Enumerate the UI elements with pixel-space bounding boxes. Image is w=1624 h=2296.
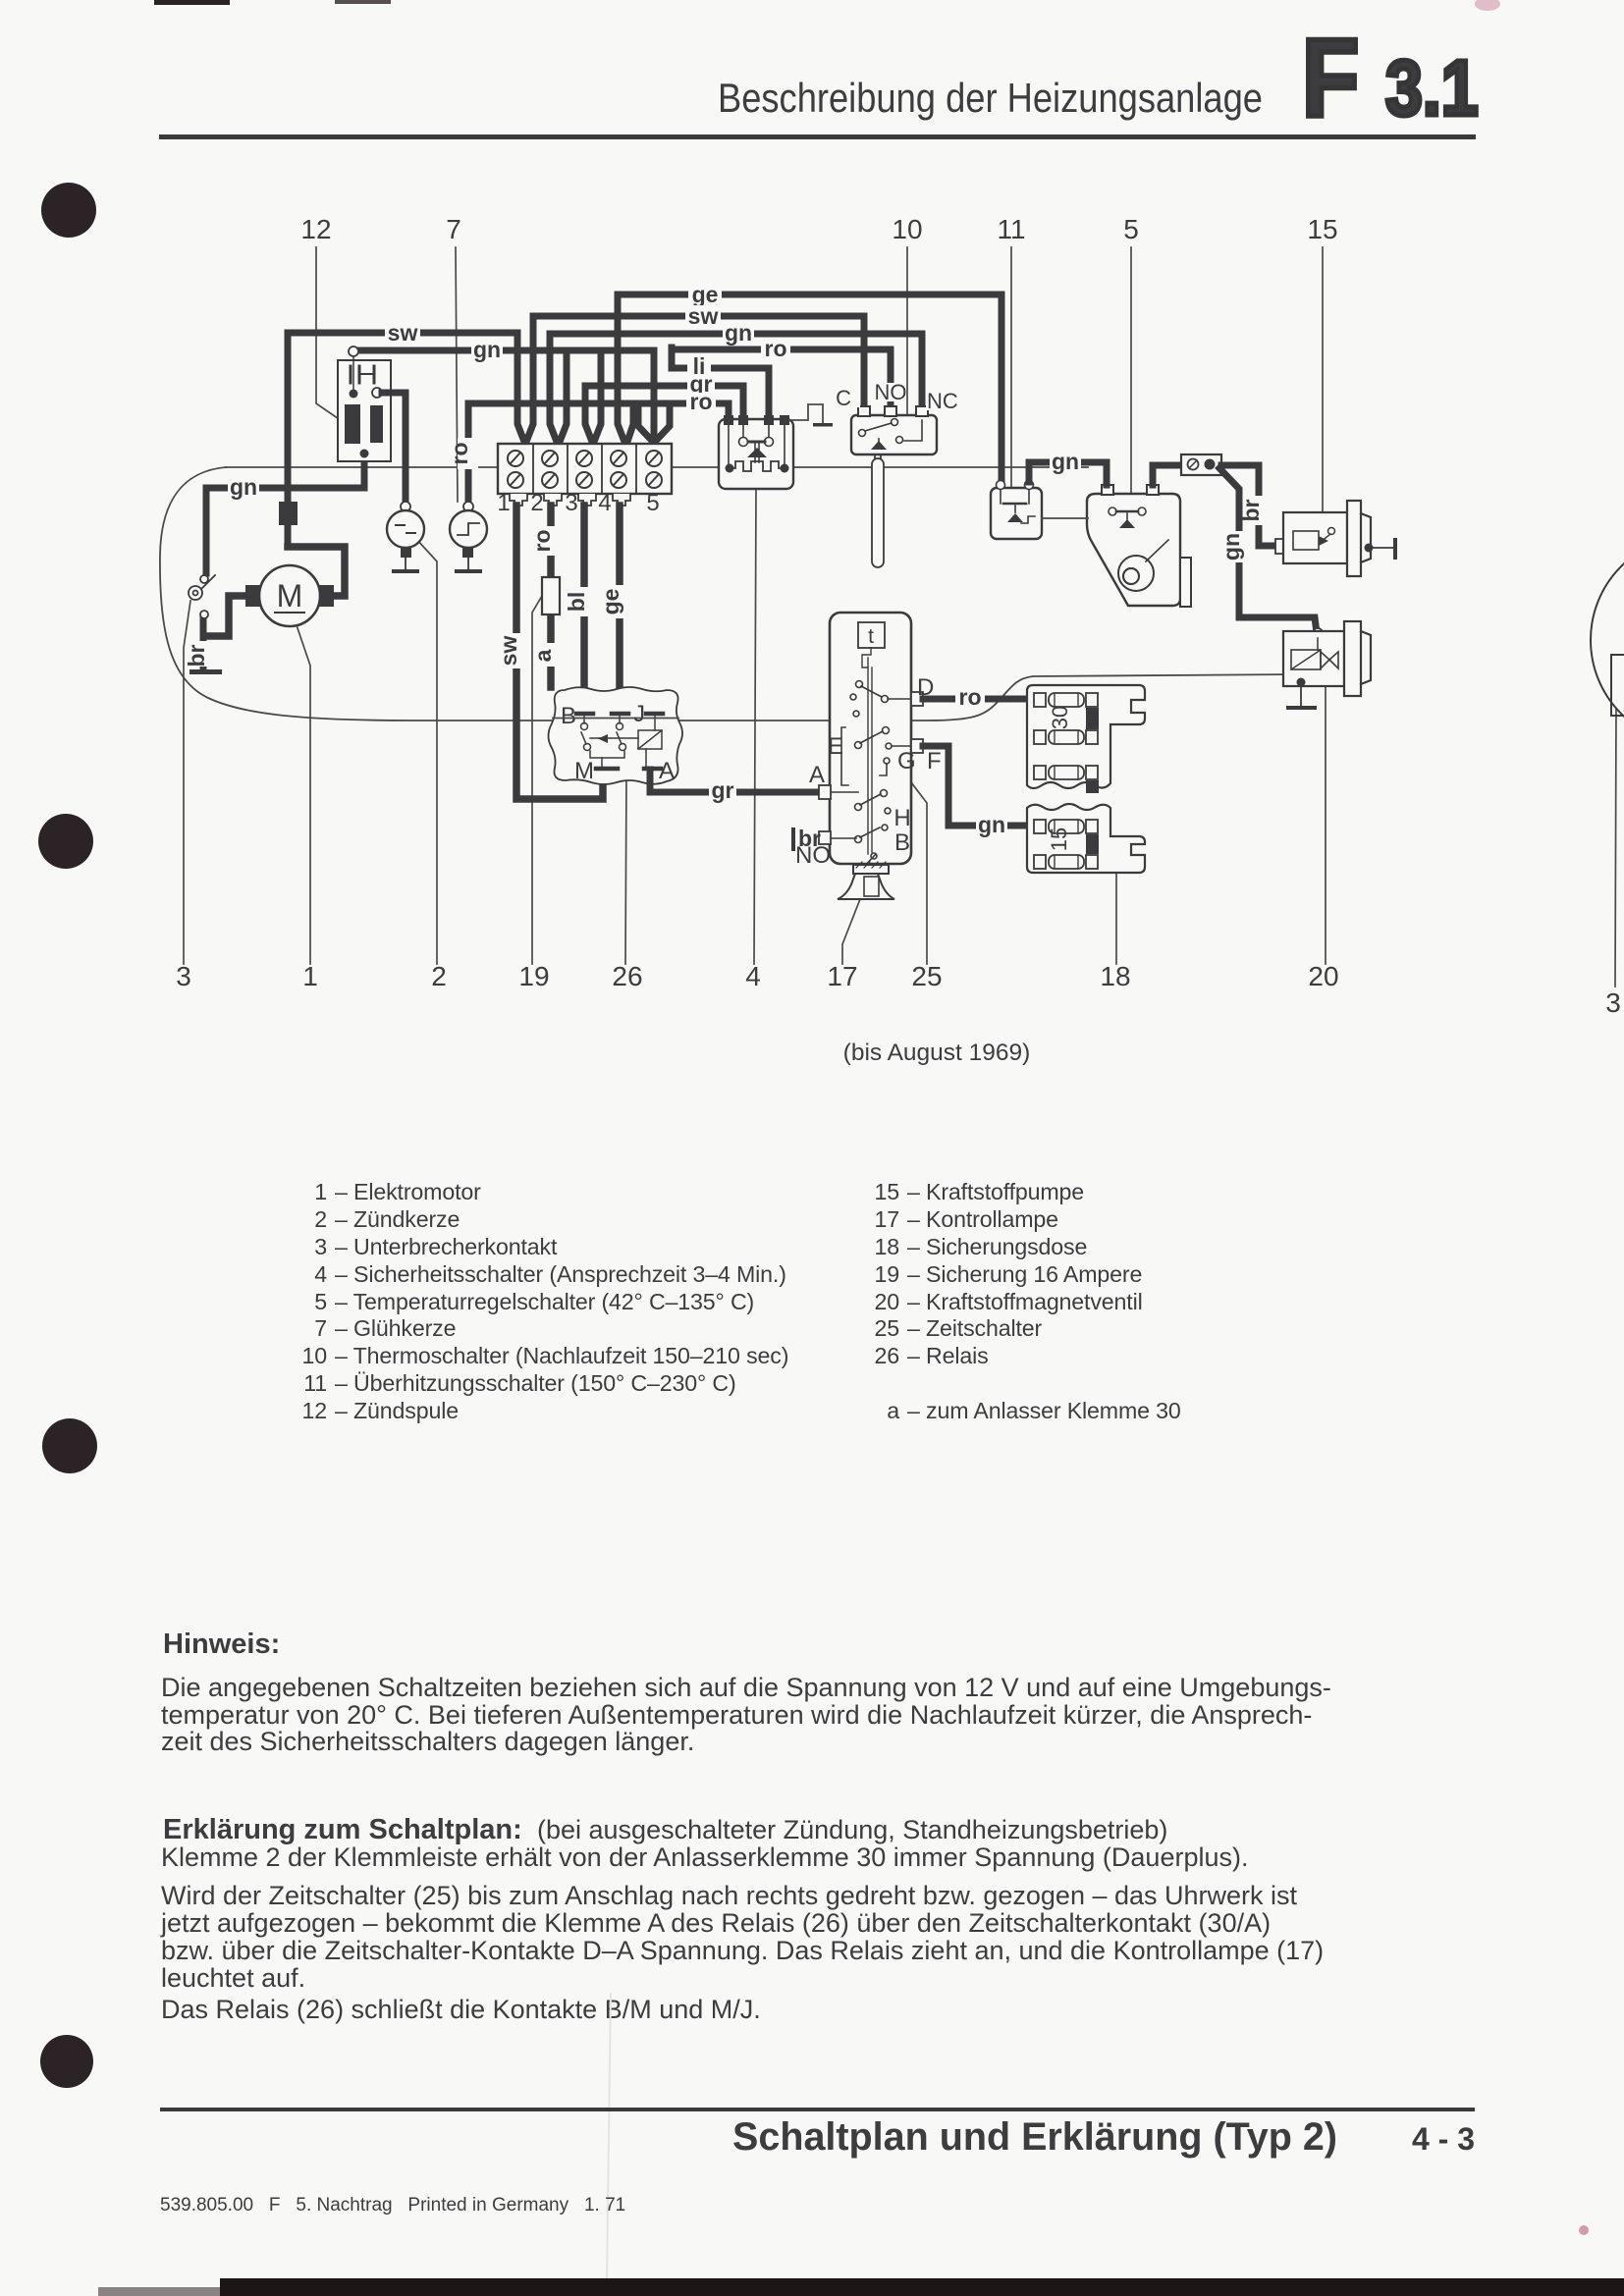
svg-text:G: G [897,748,916,774]
svg-text:(bis August 1969): (bis August 1969) [843,1040,1031,1066]
svg-text:a: a [530,649,556,662]
svg-text:– Elektromotor: – Elektromotor [335,1179,481,1204]
svg-text:Schaltplan und Erklärung (Typ: Schaltplan und Erklärung (Typ 2) [732,2115,1337,2159]
svg-text:– Zeitschalter: – Zeitschalter [907,1315,1043,1341]
svg-text:F: F [1302,18,1359,140]
svg-text:– Temperaturregelschalter (42°: – Temperaturregelschalter (42° C–135° C) [335,1289,754,1314]
svg-text:jetzt aufgezogen – bekommt die: jetzt aufgezogen – bekommt die Klemme A … [160,1908,1271,1938]
svg-text:temperatur von 20° C. Bei tief: temperatur von 20° C. Bei tieferen Außen… [161,1700,1312,1730]
svg-text:H: H [893,805,910,831]
svg-text:4 - 3: 4 - 3 [1412,2121,1475,2157]
svg-text:A: A [659,758,675,784]
svg-text:NO: NO [795,842,831,869]
svg-text:1: 1 [314,1179,327,1204]
svg-text:ro: ro [447,443,472,465]
svg-text:B: B [561,703,576,729]
svg-text:Beschreibung der Heizungsanlag: Beschreibung der Heizungsanlage [718,75,1263,121]
svg-text:– Zündkerze: – Zündkerze [335,1206,460,1232]
svg-text:– Sicherungsdose: – Sicherungsdose [907,1234,1087,1259]
svg-text:– zum Anlasser Klemme 30: – zum Anlasser Klemme 30 [907,1398,1181,1423]
svg-text:20: 20 [1308,961,1338,991]
svg-text:7: 7 [446,214,461,244]
svg-text:bl: bl [564,592,589,612]
svg-text:Erklärung zum Schaltplan:: Erklärung zum Schaltplan: [163,1814,522,1845]
svg-text:C: C [836,386,851,410]
svg-text:4: 4 [314,1261,327,1287]
svg-text:F: F [927,748,942,774]
svg-text:20: 20 [875,1289,900,1314]
svg-text:5: 5 [1123,214,1139,244]
svg-text:M: M [574,758,594,784]
svg-text:3: 3 [1605,988,1621,1018]
svg-text:– Überhitzungsschalter (150° C: – Überhitzungsschalter (150° C–230° C) [335,1370,736,1396]
svg-text:12: 12 [302,1398,328,1423]
svg-text:26: 26 [875,1343,900,1368]
svg-text:– Zündspule: – Zündspule [335,1398,459,1423]
svg-text:2: 2 [530,490,543,516]
svg-text:– Kraftstoffmagnetventil: – Kraftstoffmagnetventil [907,1289,1143,1314]
svg-text:– Kontrollampe: – Kontrollampe [907,1206,1058,1232]
svg-text:NC: NC [927,389,958,413]
svg-text:18: 18 [875,1234,900,1259]
svg-text:10: 10 [302,1343,328,1368]
svg-text:J: J [633,701,645,727]
svg-text:ro: ro [959,684,982,710]
svg-text:t: t [868,625,874,648]
svg-text:Hinweis:: Hinweis: [163,1629,280,1660]
svg-text:– Sicherheitsschalter (Ansprec: – Sicherheitsschalter (Ansprechzeit 3–4 … [335,1261,786,1287]
svg-text:18: 18 [1100,961,1130,991]
svg-text:zeit des Sicherheitsschalters: zeit des Sicherheitsschalters dagegen lä… [161,1727,694,1756]
svg-text:gn: gn [978,812,1005,837]
svg-text:539.805.00 F 5. Nachtrag: 539.805.00 F 5. Nachtrag Printed in Germ… [160,2195,625,2216]
svg-text:15: 15 [875,1179,900,1204]
svg-text:4: 4 [745,961,761,991]
svg-text:11: 11 [303,1370,327,1396]
svg-text:leuchtet auf.: leuchtet auf. [161,1963,305,1993]
svg-text:sw: sw [496,636,521,667]
svg-text:– Glühkerze: – Glühkerze [335,1315,456,1341]
svg-text:(bei ausgeschalteter Zündung,: (bei ausgeschalteter Zündung, Standheizu… [537,1815,1167,1844]
svg-text:ge: ge [598,589,623,615]
svg-text:Das Relais (26) schließt die K: Das Relais (26) schließt die Kontakte B/… [161,1995,761,2024]
svg-text:Klemme 2 der Klemmleiste erhäl: Klemme 2 der Klemmleiste erhält von der … [161,1842,1248,1872]
svg-text:ro: ro [529,530,555,553]
svg-text:M: M [277,578,303,614]
svg-text:B: B [894,829,910,856]
svg-text:3.1: 3.1 [1385,44,1479,132]
svg-text:15: 15 [1307,214,1337,244]
svg-text:gr: gr [712,777,734,803]
svg-text:10: 10 [892,214,922,244]
svg-text:19: 19 [518,961,549,991]
svg-text:gn: gn [725,320,752,346]
svg-text:3: 3 [176,961,191,991]
svg-text:2: 2 [431,961,447,991]
svg-text:Die angegebenen Schaltzeiten b: Die angegebenen Schaltzeiten beziehen si… [161,1673,1331,1702]
svg-text:– Kraftstoffpumpe: – Kraftstoffpumpe [907,1179,1084,1204]
svg-text:3: 3 [565,490,577,516]
svg-text:– Relais: – Relais [907,1343,989,1368]
svg-text:2: 2 [314,1206,327,1232]
svg-text:26: 26 [612,961,642,991]
svg-text:A: A [809,762,825,788]
svg-text:– Sicherung 16 Ampere: – Sicherung 16 Ampere [907,1261,1142,1287]
svg-text:25: 25 [911,961,942,991]
svg-text:7: 7 [314,1315,327,1341]
svg-text:3: 3 [314,1234,327,1259]
svg-text:sw: sw [388,320,418,346]
svg-text:12: 12 [300,214,331,244]
svg-text:br: br [1238,499,1264,521]
svg-text:– Unterbrecherkontakt: – Unterbrecherkontakt [335,1234,558,1259]
svg-text:a: a [887,1398,899,1423]
svg-text:sw: sw [688,303,719,329]
svg-text:ro: ro [765,336,787,361]
svg-text:15: 15 [1047,828,1071,851]
svg-text:Wird der Zeitschalter (25) bis: Wird der Zeitschalter (25) bis zum Ansch… [161,1881,1298,1910]
svg-text:5: 5 [646,490,659,516]
svg-text:1: 1 [497,490,510,516]
svg-text:– Thermoschalter (Nachlaufzeit: – Thermoschalter (Nachlaufzeit 150–210 s… [335,1343,788,1368]
svg-text:ro: ro [690,389,713,414]
svg-text:gn: gn [1218,533,1244,561]
svg-text:30: 30 [1048,706,1072,729]
svg-text:4: 4 [598,490,611,516]
svg-text:25: 25 [875,1315,900,1341]
svg-text:E: E [828,733,843,760]
svg-text:bzw. über die Zeitschalter-Kon: bzw. über die Zeitschalter-Kontakte D–A … [161,1936,1324,1965]
svg-text:17: 17 [827,961,857,991]
svg-text:5: 5 [314,1289,327,1314]
svg-text:gn: gn [1052,449,1079,474]
svg-text:19: 19 [875,1261,900,1287]
svg-text:NO: NO [875,380,907,404]
svg-text:1: 1 [302,961,318,991]
svg-text:br: br [184,644,209,667]
svg-text:gn: gn [230,474,257,500]
svg-text:11: 11 [997,214,1025,244]
svg-text:gn: gn [473,337,501,362]
svg-text:17: 17 [875,1206,900,1232]
